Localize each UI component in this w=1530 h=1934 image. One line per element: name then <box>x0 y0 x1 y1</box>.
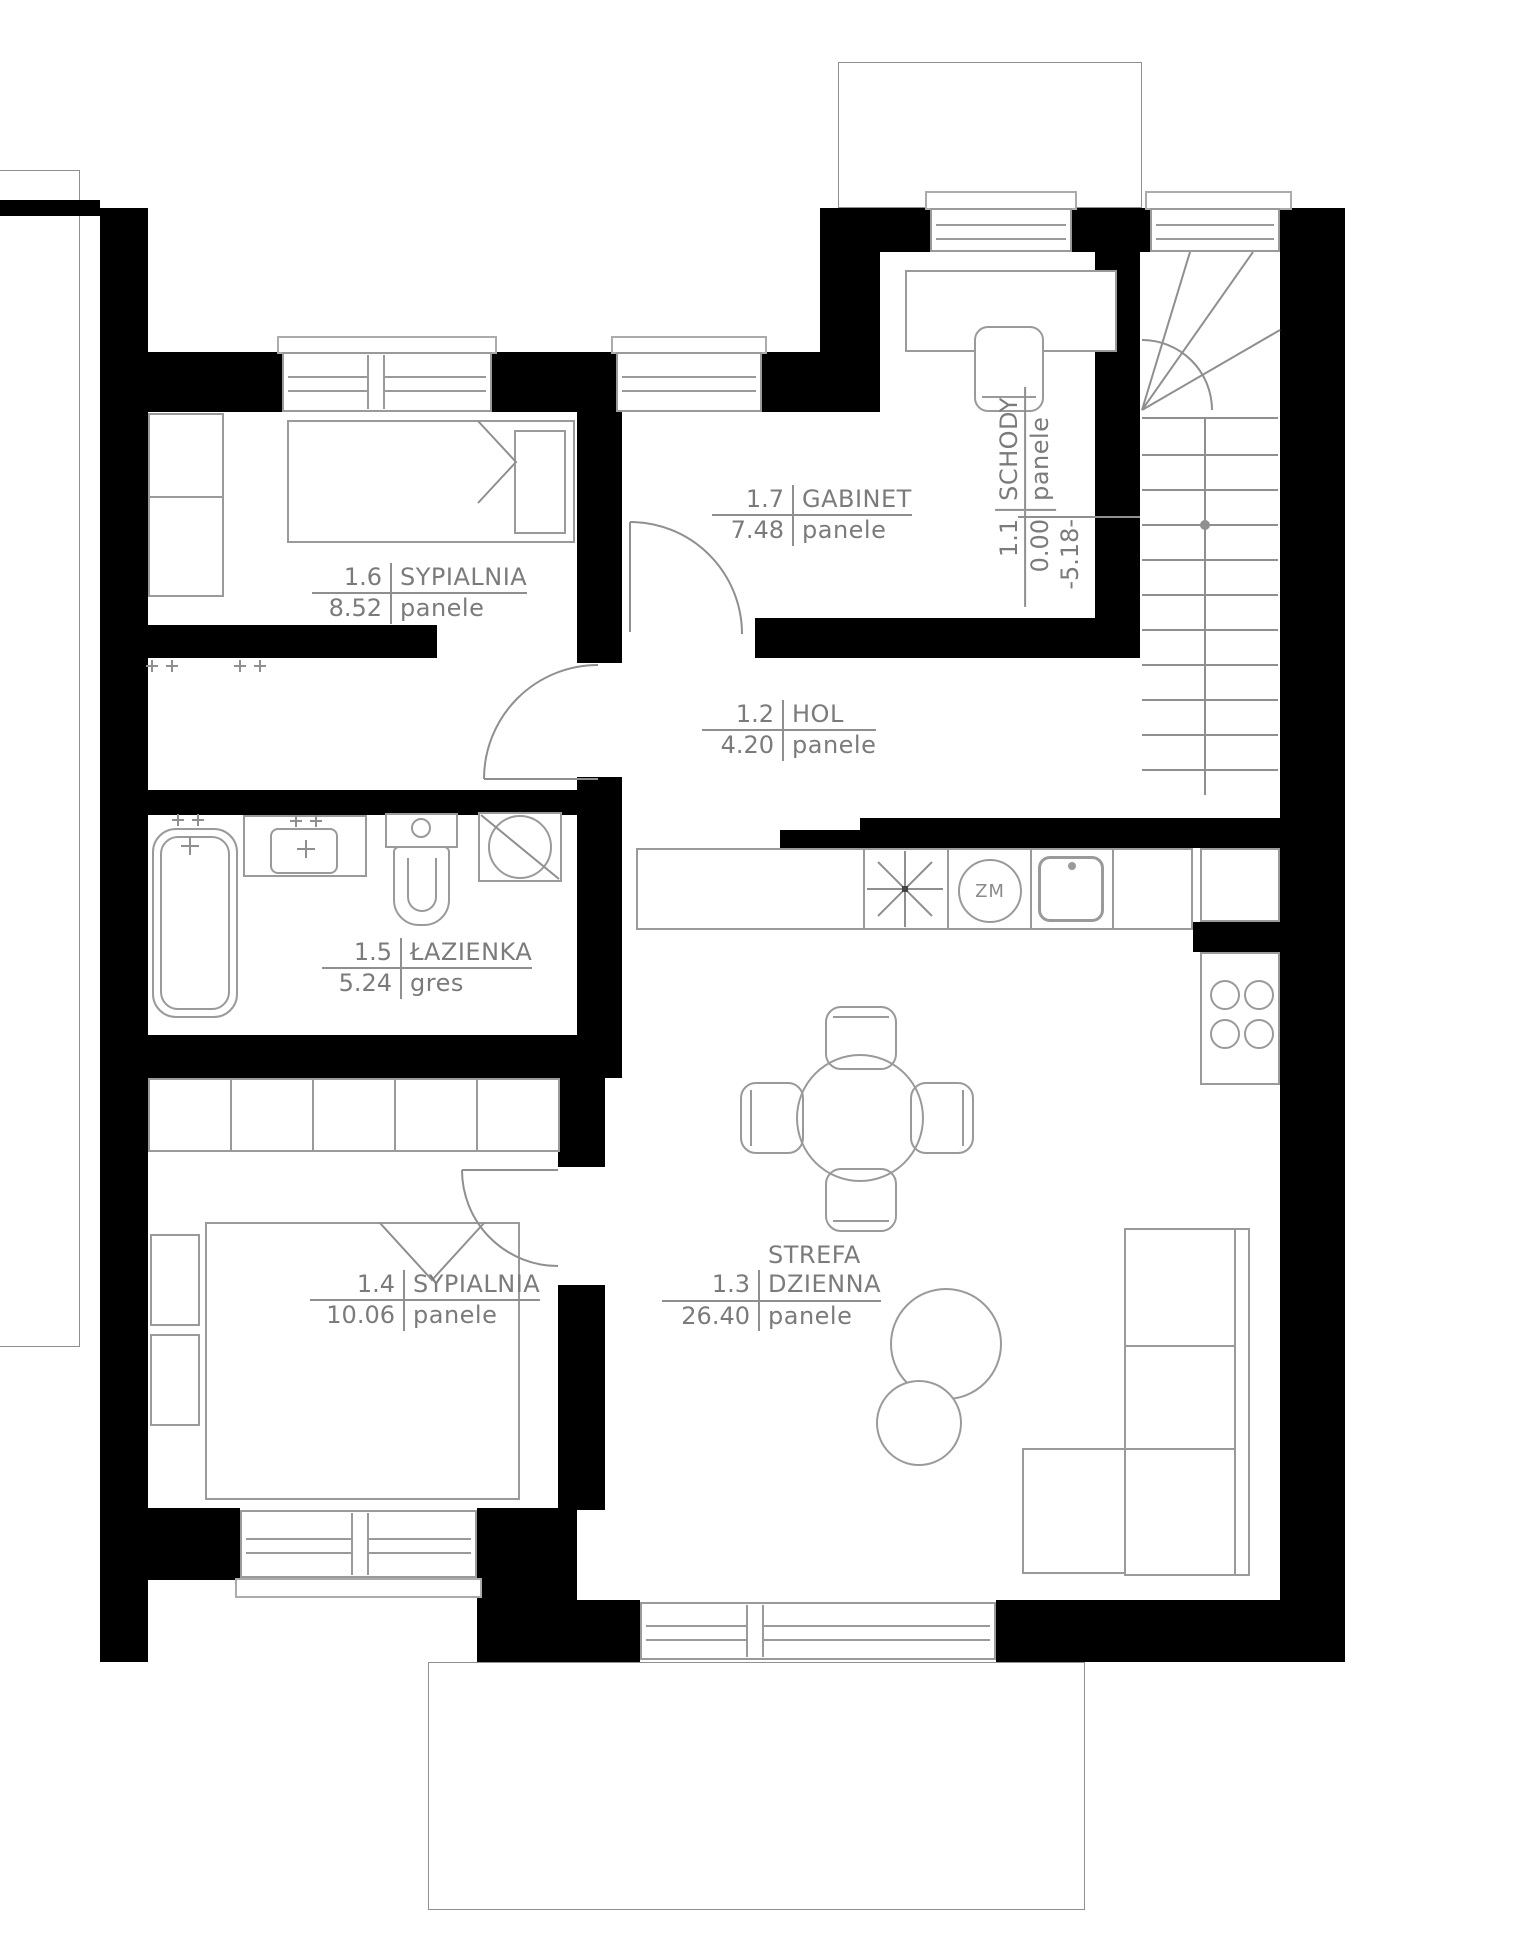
room-area: 7.48 <box>712 516 794 545</box>
room-number: 1.3 <box>662 1270 760 1299</box>
room-label-stairs: 1.1 SCHODY 0.00 panele -5.18- <box>995 387 1085 607</box>
room-name-line1: STREFA <box>760 1241 861 1270</box>
room-flooring: panele <box>760 1302 852 1331</box>
room-label-living: STREFA 1.3 DZIENNA 26.40 panele <box>662 1241 881 1331</box>
plan-strokes <box>0 0 1530 1934</box>
room-label-gabinet: 1.7 GABINET 7.48 panele <box>712 485 912 546</box>
room-name: ŁAZIENKA <box>402 938 532 967</box>
room-area: 5.24 <box>322 969 402 998</box>
room-number: 1.7 <box>712 485 794 514</box>
stair-treads <box>1142 418 1278 770</box>
room-label-hol: 1.2 HOL 4.20 panele <box>702 700 876 761</box>
room-number: 1.5 <box>322 938 402 967</box>
room-label-bedroom14: 1.4 SYPIALNIA 10.06 panele <box>310 1270 540 1331</box>
room-number: 1.2 <box>702 700 784 729</box>
washing-machine-diagonal <box>481 815 559 879</box>
door-bedroom14 <box>462 1170 558 1266</box>
room-number: 1.6 <box>312 563 392 592</box>
room-area: 10.06 <box>310 1301 405 1330</box>
kitchen-star-symbol <box>867 851 943 927</box>
room-area: 4.20 <box>702 731 784 760</box>
room-name: GABINET <box>794 485 912 514</box>
room-label-bedroom16: 1.6 SYPIALNIA 8.52 panele <box>312 563 527 624</box>
stairs-level: -5.18- <box>1056 509 1085 607</box>
stair-walk-start <box>1200 520 1210 530</box>
room-flooring: gres <box>402 969 464 998</box>
room-flooring: panele <box>392 594 484 623</box>
room-flooring: panele <box>405 1301 497 1330</box>
room-flooring: panele <box>784 731 876 760</box>
room-label-bathroom: 1.5 ŁAZIENKA 5.24 gres <box>322 938 532 999</box>
room-flooring: panele <box>794 516 886 545</box>
stair-winders <box>1142 252 1280 410</box>
room-name: SYPIALNIA <box>405 1270 540 1299</box>
door-bathroom <box>484 665 598 779</box>
stairs <box>1142 252 1280 795</box>
room-number: 1.1 <box>995 509 1024 607</box>
room-name: SCHODY <box>995 397 1024 509</box>
room-area: 0.00 <box>1026 509 1055 607</box>
faucet-symbols <box>146 660 322 858</box>
room-area: 26.40 <box>662 1302 760 1331</box>
room-name: SYPIALNIA <box>392 563 527 592</box>
room-number: 1.4 <box>310 1270 405 1299</box>
room-flooring: panele <box>1026 417 1055 509</box>
room-area: 8.52 <box>312 594 392 623</box>
room-name: DZIENNA <box>760 1270 881 1299</box>
bed-fold-bedroom16 <box>478 421 516 503</box>
floor-plan: ZM <box>0 0 1530 1934</box>
room-name: HOL <box>784 700 844 729</box>
